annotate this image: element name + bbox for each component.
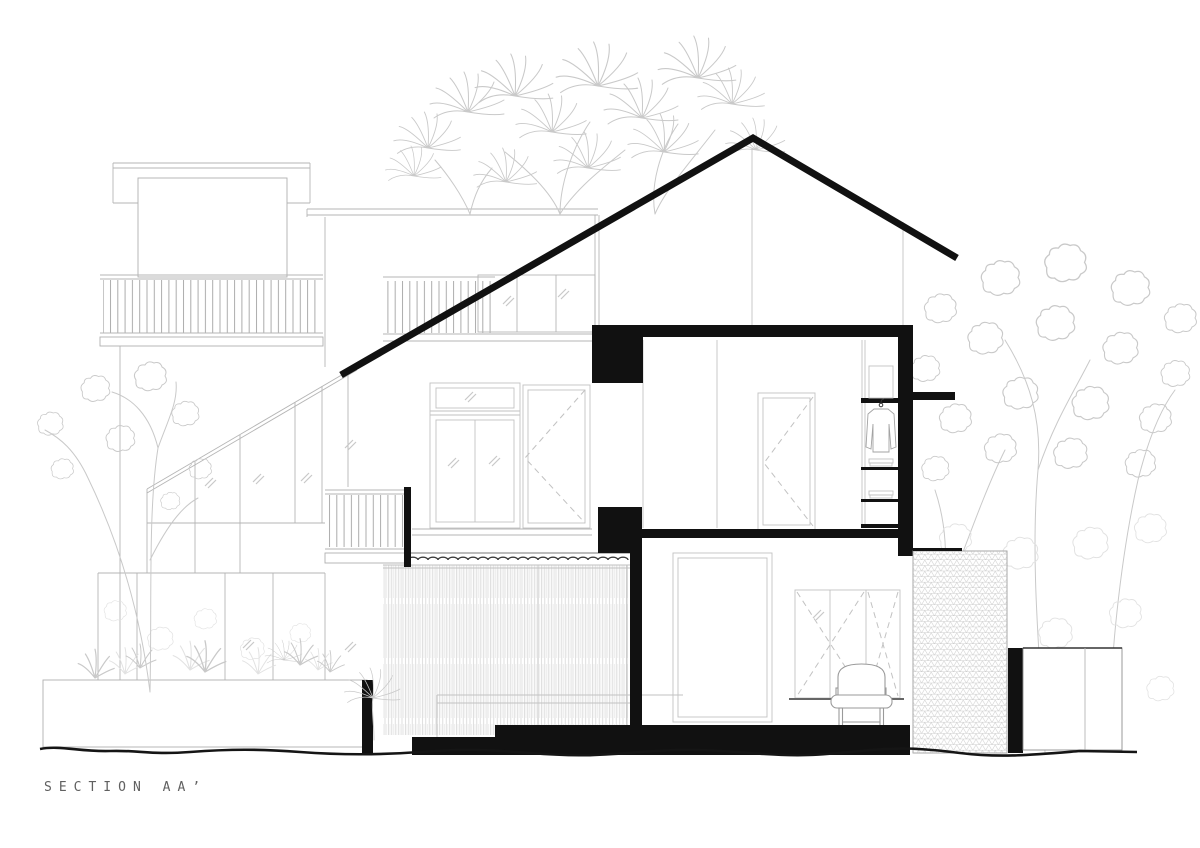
hatched-wall-cap bbox=[913, 548, 962, 551]
facade-windows bbox=[430, 383, 590, 528]
left-wall-head bbox=[592, 325, 643, 383]
drawing-title: SECTION AA’ bbox=[44, 780, 207, 795]
right-wall bbox=[898, 330, 913, 556]
architectural-section-drawing: SECTION AA’ bbox=[0, 0, 1200, 848]
veranda-screen bbox=[383, 565, 628, 735]
section-drawing-svg bbox=[0, 0, 1200, 848]
top-palm-cluster bbox=[386, 36, 785, 214]
right-blocks bbox=[913, 548, 1122, 753]
eave-beam bbox=[913, 392, 955, 400]
mid-floor-slab bbox=[629, 529, 899, 538]
garden-post bbox=[362, 680, 373, 753]
lower-left-wall bbox=[630, 537, 642, 733]
ceiling-slab bbox=[607, 325, 913, 337]
hanging-shirt-icon bbox=[866, 409, 896, 452]
right-planter-box bbox=[1023, 648, 1122, 750]
left-railing bbox=[103, 280, 321, 333]
upper-volume bbox=[138, 178, 287, 277]
planter-wall bbox=[43, 680, 367, 747]
balcony-post bbox=[404, 487, 411, 567]
right-post bbox=[1008, 648, 1023, 753]
left-tree bbox=[38, 362, 212, 692]
building-section bbox=[325, 138, 957, 755]
hatched-wall bbox=[913, 551, 1007, 753]
